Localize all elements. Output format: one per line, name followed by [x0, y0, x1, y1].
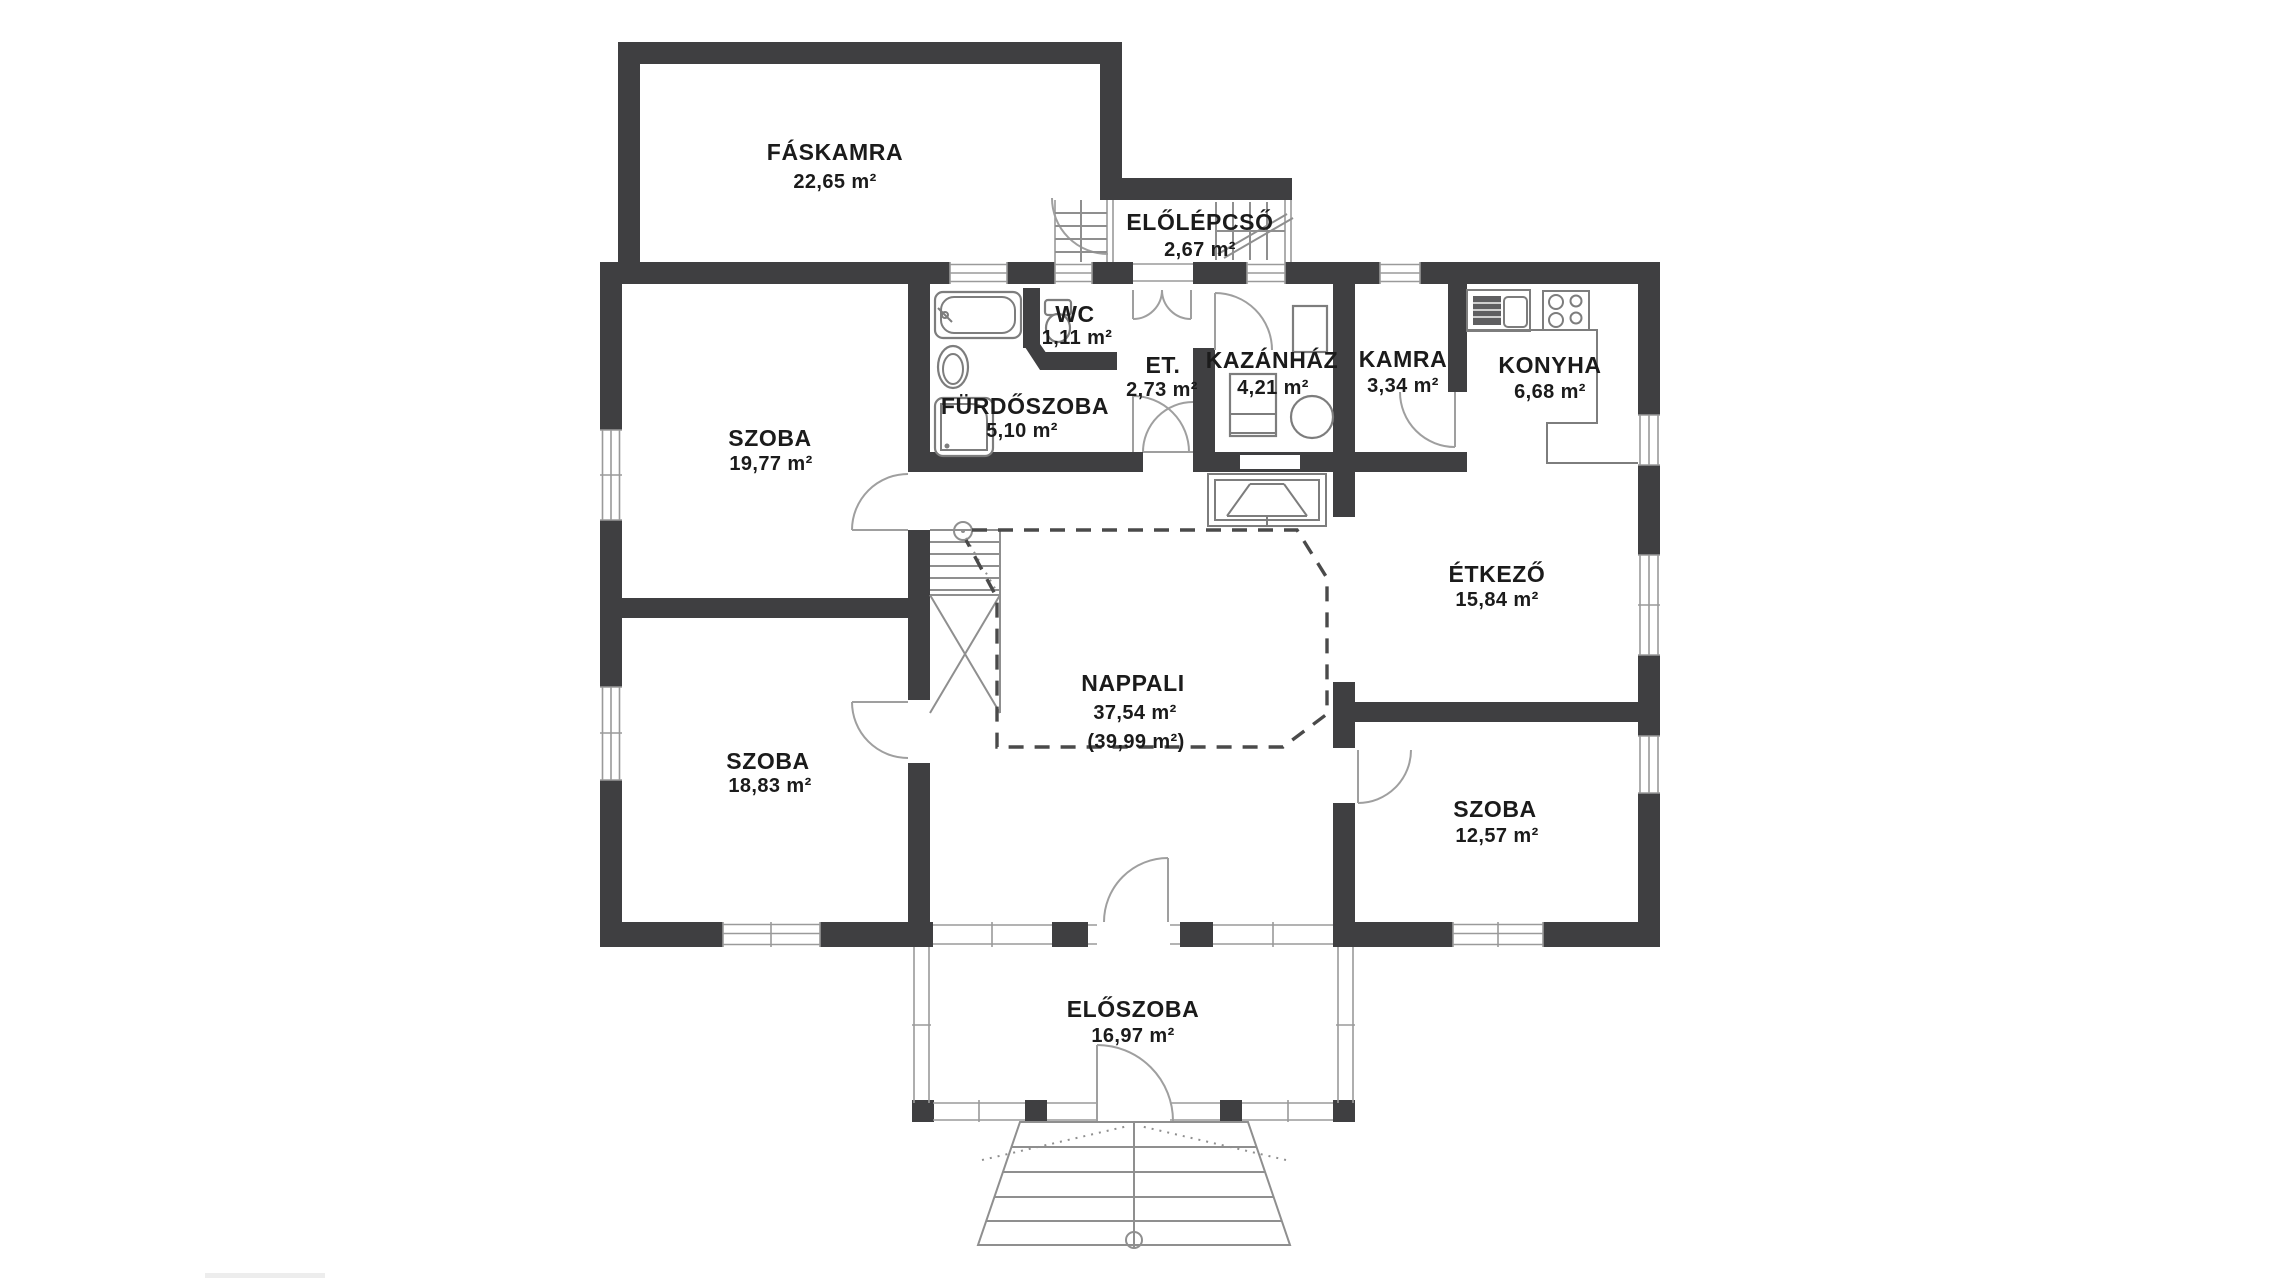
washbasin — [938, 346, 968, 388]
label-szoba-sw: SZOBA — [726, 748, 810, 774]
window-right-3 — [1638, 736, 1660, 793]
door-kamra — [1400, 392, 1455, 447]
door-porch-outer — [1097, 1045, 1173, 1121]
front-steps — [978, 1122, 1290, 1248]
door-hall-et — [1143, 402, 1193, 452]
door-entrance-double — [1133, 290, 1191, 319]
area-szoba-nw: 19,77 m² — [729, 453, 812, 475]
area-szoba-sw: 18,83 m² — [728, 775, 811, 797]
door-szoba-sw — [852, 702, 908, 758]
label-et: ET. — [1145, 352, 1180, 378]
area-eloszoba: 16,97 m² — [1091, 1025, 1174, 1047]
label-eloszoba: ELŐSZOBA — [1067, 995, 1200, 1022]
label-elolepcso: ELŐLÉPCSŐ — [1126, 208, 1273, 235]
label-etkezo: ÉTKEZŐ — [1449, 560, 1546, 587]
area-kazanhaz: 4,21 m² — [1237, 377, 1309, 399]
interior-stair — [930, 522, 1000, 713]
window-right-2 — [1638, 555, 1660, 655]
area-et: 2,73 m² — [1126, 379, 1198, 401]
label-szoba-se: SZOBA — [1453, 796, 1537, 822]
floor-plan-drawing: FÁSKAMRA 22,65 m² ELŐLÉPCSŐ 2,67 m² WC 1… — [0, 0, 2275, 1280]
kitchen-sink — [1467, 290, 1530, 331]
label-furdoszoba: FÜRDŐSZOBA — [941, 392, 1109, 419]
area-furdoszoba: 5,10 m² — [986, 420, 1058, 442]
window-bottom-2 — [1453, 922, 1543, 947]
label-kamra: KAMRA — [1359, 346, 1448, 372]
area-szoba-se: 12,57 m² — [1455, 825, 1538, 847]
label-nappali: NAPPALI — [1081, 670, 1184, 696]
area-wc: 1,11 m² — [1042, 327, 1113, 349]
label-faskamra: FÁSKAMRA — [767, 138, 903, 165]
entrance-threshold — [1133, 264, 1193, 281]
edge-artifact — [205, 1273, 325, 1278]
area-alt-nappali: (39,99 m²) — [1087, 731, 1184, 753]
fireplace — [1208, 474, 1326, 526]
area-elolepcso: 2,67 m² — [1164, 239, 1236, 261]
window-top-2 — [1055, 262, 1092, 284]
window-left-1 — [600, 430, 622, 520]
label-szoba-nw: SZOBA — [728, 425, 812, 451]
label-wc: WC — [1055, 301, 1095, 327]
porch-glazing — [912, 922, 1355, 1122]
floor-plan-page: FÁSKAMRA 22,65 m² ELŐLÉPCSŐ 2,67 m² WC 1… — [0, 0, 2275, 1280]
window-top-3 — [1247, 262, 1285, 284]
area-faskamra: 22,65 m² — [793, 171, 876, 193]
door-szoba-nw — [852, 474, 908, 530]
door-hall-porch — [1104, 858, 1168, 922]
area-konyha: 6,68 m² — [1514, 381, 1586, 403]
window-right-1 — [1638, 415, 1660, 465]
window-bottom-1 — [723, 922, 820, 947]
area-etkezo: 15,84 m² — [1455, 589, 1538, 611]
stove — [1543, 291, 1589, 330]
door-szoba-se — [1358, 750, 1411, 803]
window-left-2 — [600, 687, 622, 780]
area-kamra: 3,34 m² — [1367, 375, 1439, 397]
label-konyha: KONYHA — [1498, 352, 1601, 378]
area-nappali: 37,54 m² — [1093, 702, 1176, 724]
door-kazanhaz — [1215, 293, 1272, 350]
window-top-4 — [1380, 262, 1420, 284]
label-kazanhaz: KAZÁNHÁZ — [1206, 346, 1339, 373]
bathtub — [935, 292, 1021, 338]
window-top-1 — [950, 262, 1007, 284]
